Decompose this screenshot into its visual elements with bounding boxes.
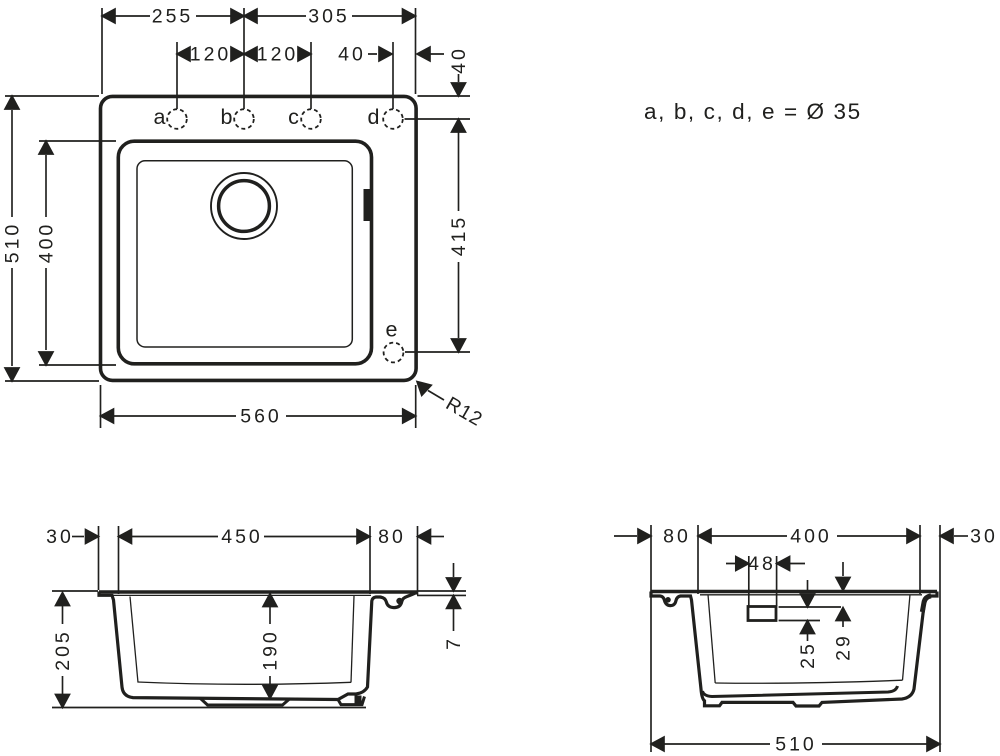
svg-text:80: 80 <box>663 526 691 548</box>
svg-text:205: 205 <box>52 629 74 671</box>
svg-text:510: 510 <box>2 222 24 264</box>
svg-text:R12: R12 <box>442 393 487 431</box>
svg-text:30: 30 <box>46 526 74 548</box>
svg-text:560: 560 <box>240 406 282 428</box>
svg-text:7: 7 <box>443 636 465 650</box>
svg-text:120: 120 <box>190 44 232 66</box>
svg-text:450: 450 <box>221 526 263 548</box>
svg-text:120: 120 <box>257 44 299 66</box>
svg-text:305: 305 <box>308 6 350 28</box>
svg-text:400: 400 <box>36 222 58 264</box>
svg-text:b: b <box>221 105 233 129</box>
svg-text:c: c <box>288 105 299 129</box>
svg-text:400: 400 <box>790 526 832 548</box>
svg-text:80: 80 <box>378 526 406 548</box>
svg-text:255: 255 <box>152 6 194 28</box>
svg-text:25: 25 <box>797 641 819 669</box>
svg-text:e: e <box>386 318 398 342</box>
svg-text:a, b, c, d, e = Ø 35: a, b, c, d, e = Ø 35 <box>644 99 862 124</box>
svg-text:30: 30 <box>970 526 998 548</box>
svg-text:190: 190 <box>260 629 282 671</box>
svg-text:48: 48 <box>748 553 776 575</box>
svg-text:510: 510 <box>775 734 817 756</box>
svg-text:a: a <box>154 105 166 129</box>
svg-text:40: 40 <box>338 44 366 66</box>
svg-text:40: 40 <box>448 46 470 74</box>
svg-text:415: 415 <box>448 215 470 257</box>
svg-text:d: d <box>368 105 380 129</box>
svg-text:29: 29 <box>833 633 855 661</box>
